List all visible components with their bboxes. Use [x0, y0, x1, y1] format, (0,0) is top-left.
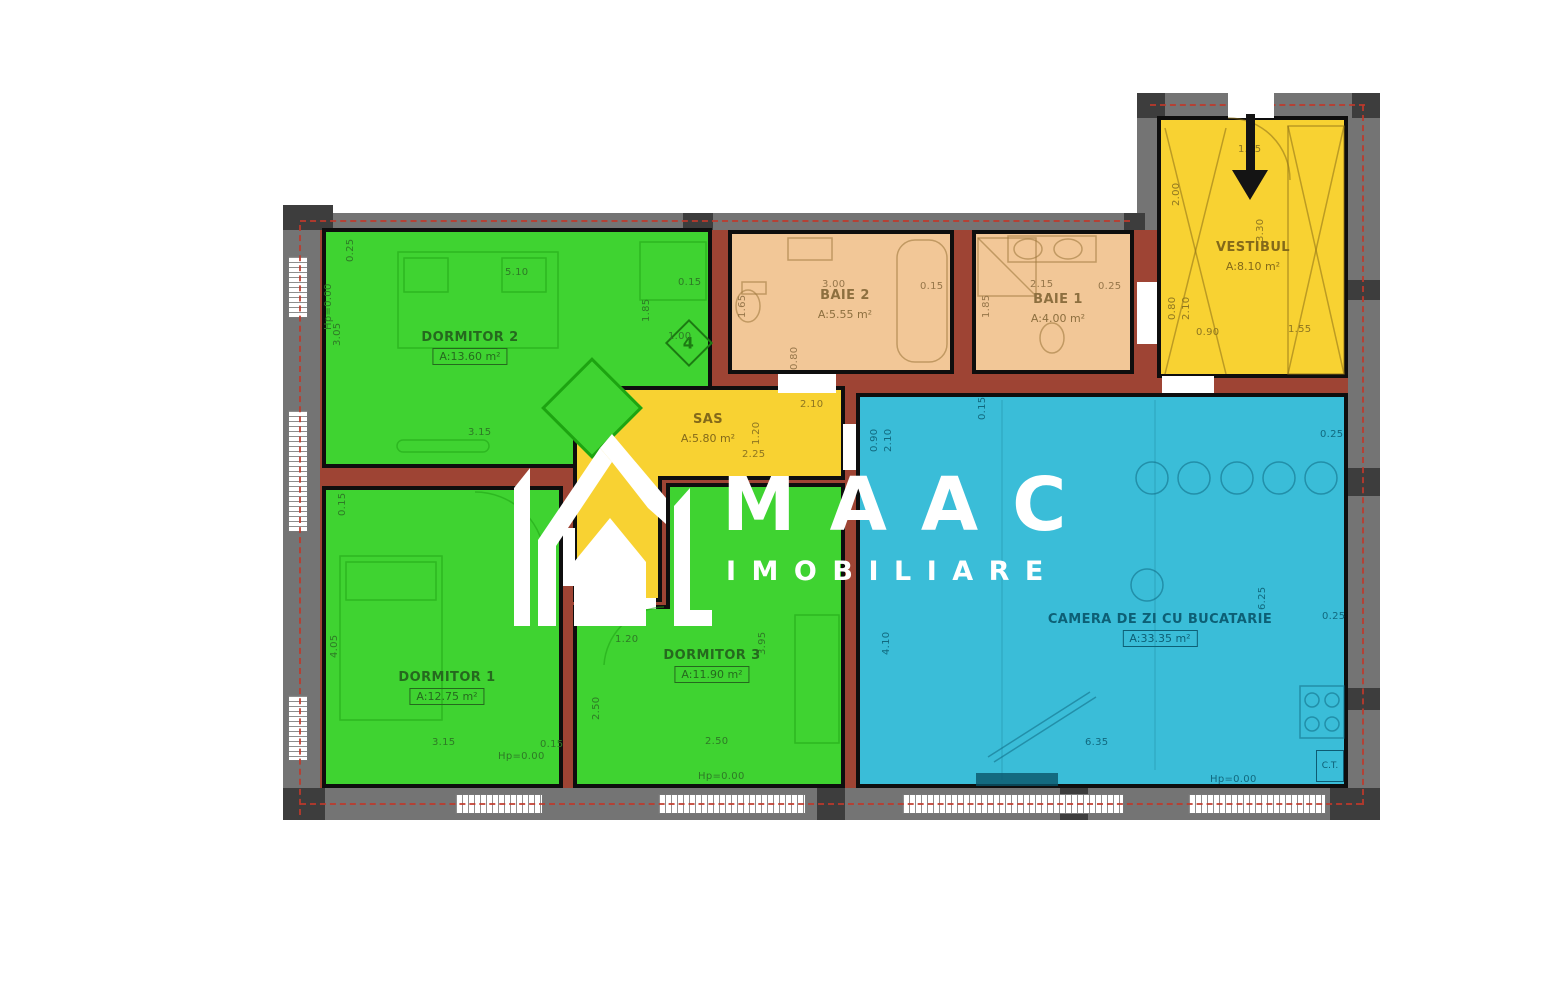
dimension-label: 2.10: [884, 429, 894, 452]
room-label-baie2: BAIE 2 A:5.55 m²: [812, 288, 878, 322]
maac-logo-text: MAAC IMOBILIARE: [722, 468, 1101, 587]
dimension-label: Hp=0.00: [498, 752, 545, 762]
logo-subtitle: IMOBILIARE: [726, 556, 1101, 587]
room-label-dormitor1: DORMITOR 1 A:12.75 m²: [398, 670, 495, 705]
room-label-camera: CAMERA DE ZI CU BUCATARIE A:33.35 m²: [1048, 612, 1272, 647]
dimension-label: 2.25: [742, 450, 765, 460]
dimension-label: 1.20: [615, 635, 638, 645]
dimension-label: 0.80: [790, 347, 800, 370]
dimension-label: 0.90: [1196, 328, 1219, 338]
dimension-label: 0.25: [1320, 430, 1343, 440]
dimension-label: 0.90: [870, 429, 880, 452]
dimension-label: 1.55: [1288, 325, 1311, 335]
dimension-label: 0.15: [678, 278, 701, 288]
dimension-label: 0.15: [920, 282, 943, 292]
dimension-label: 3.15: [432, 738, 455, 748]
room-label-baie1: BAIE 1 A:4.00 m²: [1025, 292, 1091, 326]
dimension-label: Hp=0.00: [1210, 775, 1257, 785]
dimension-label: 1.20: [752, 422, 762, 445]
room-label-dormitor2: DORMITOR 2 A:13.60 m²: [421, 330, 518, 365]
dimension-label: 3.15: [468, 428, 491, 438]
dimension-label: 6.35: [1085, 738, 1108, 748]
maac-logo-icon: [512, 412, 714, 626]
floor-plan: 4 C.T. DORMITOR 2 A:13.60 m² BAIE 2 A:5.…: [0, 0, 1558, 1000]
dimension-label: 1.85: [642, 299, 652, 322]
dimension-label: 0.15: [540, 740, 563, 750]
dimension-label: 2.00: [1172, 183, 1182, 206]
dimension-label: Hp=0.00: [698, 772, 745, 782]
dimension-label: 2.50: [705, 737, 728, 747]
dimension-label: Hp=0.00: [324, 283, 334, 330]
dimension-label: 3.05: [333, 323, 343, 346]
dimension-label: 0.25: [1322, 612, 1345, 622]
dimension-label: 0.25: [346, 239, 356, 262]
dimension-label: 6.25: [1258, 587, 1268, 610]
dimension-label: 0.15: [978, 397, 988, 420]
dimension-label: 4.10: [882, 632, 892, 655]
dimension-label: 2.15: [1030, 280, 1053, 290]
room-label-vestibul: VESTIBUL A:8.10 m²: [1216, 240, 1290, 274]
dimension-label: 2.50: [592, 697, 602, 720]
room-label-dormitor3: DORMITOR 3 A:11.90 m²: [663, 648, 760, 683]
entrance-arrow-icon: [1226, 114, 1274, 202]
dimension-label: 2.10: [800, 400, 823, 410]
dimension-label: 0.25: [1098, 282, 1121, 292]
dimension-label: 0.15: [338, 493, 348, 516]
dimension-label: 1.85: [982, 295, 992, 318]
dimension-label: 2.10: [1182, 297, 1192, 320]
dimension-label: 5.10: [505, 268, 528, 278]
dimension-label: 1.00: [668, 332, 691, 342]
dimension-label: 0.80: [1168, 297, 1178, 320]
dimension-label: 1.65: [738, 295, 748, 318]
dimension-label: 3.30: [1256, 219, 1266, 242]
dimension-label: 4.05: [330, 635, 340, 658]
logo-name: MAAC: [722, 468, 1101, 542]
